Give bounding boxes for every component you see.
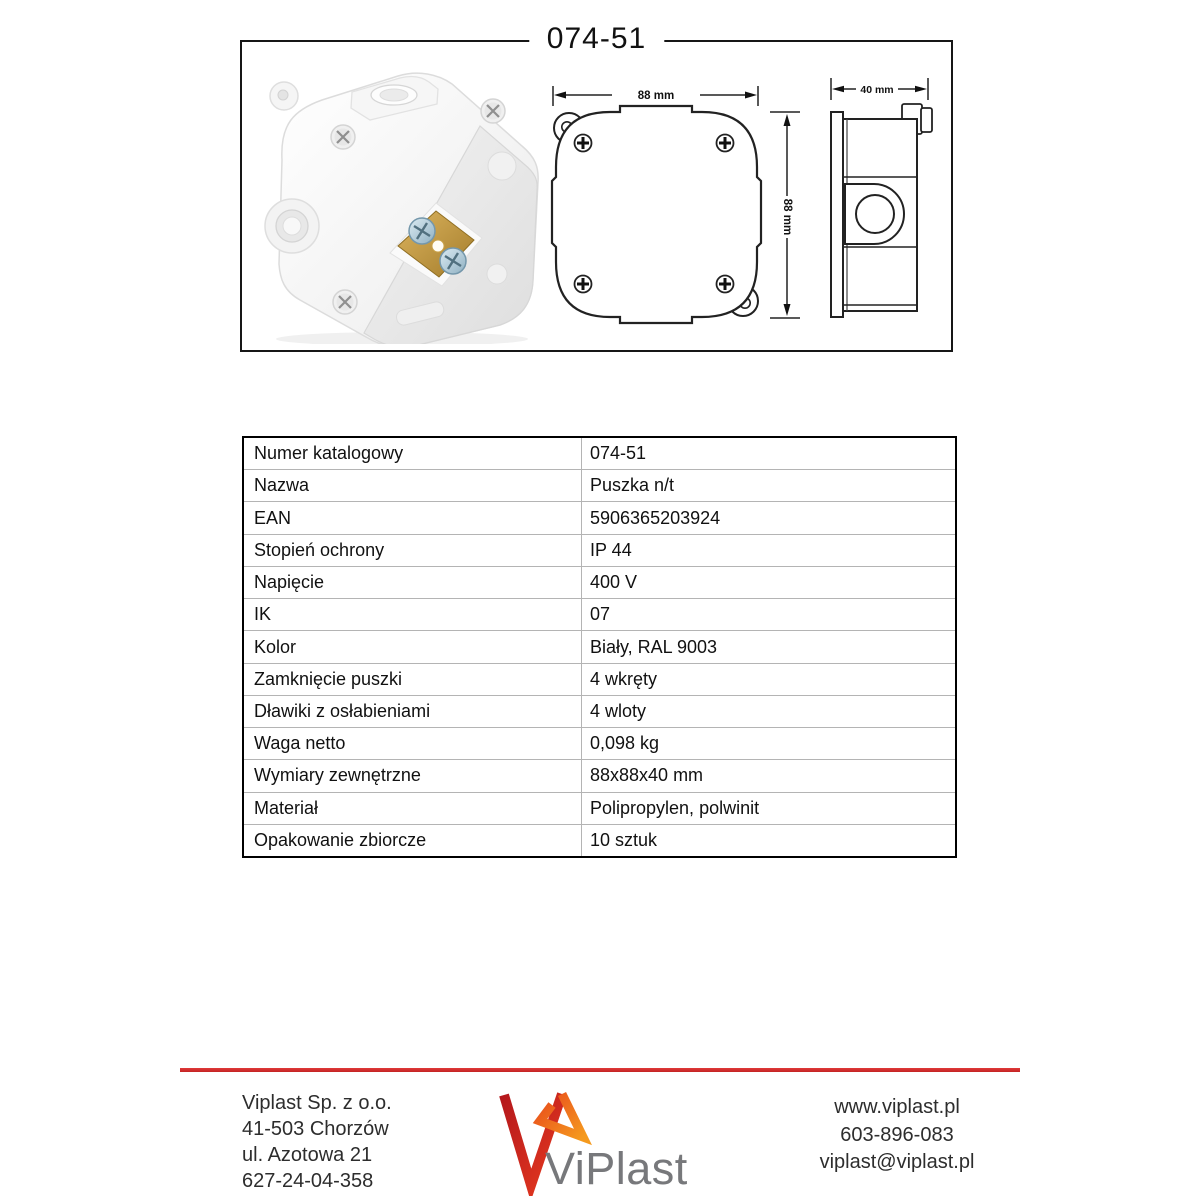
lid-screw	[481, 99, 505, 123]
spec-label: Numer katalogowy	[244, 438, 582, 469]
product-photo	[250, 68, 542, 344]
company-phone: 627-24-04-358	[242, 1168, 392, 1194]
table-row: Materiał Polipropylen, polwinit	[244, 792, 955, 824]
contact-website: www.viplast.pl	[772, 1094, 1022, 1122]
spec-label: IK	[244, 599, 582, 630]
side-cable-entry	[265, 199, 319, 253]
company-city: 41-503 Chorzów	[242, 1116, 392, 1142]
table-row: Napięcie 400 V	[244, 566, 955, 598]
front-view-drawing: 88 mm 88 mm	[540, 84, 812, 340]
terminal-screw	[440, 248, 466, 274]
spec-label: Zamknięcie puszki	[244, 664, 582, 695]
screw-symbol	[575, 135, 592, 152]
table-row: Nazwa Puszka n/t	[244, 469, 955, 501]
lid-screw	[331, 125, 355, 149]
logo-text: ViPlast	[545, 1143, 688, 1194]
depth-dimension-label: 40 mm	[860, 84, 893, 96]
footer-accent-line	[180, 1068, 1020, 1072]
table-row: EAN 5906365203924	[244, 501, 955, 533]
screw-symbol	[575, 276, 592, 293]
spec-value: 074-51	[582, 438, 955, 469]
spec-value: 4 wkręty	[582, 664, 955, 695]
side-view-drawing: 40 mm	[818, 75, 940, 335]
height-dimension-label: 88 mm	[781, 199, 793, 235]
spec-table: Numer katalogowy 074-51 Nazwa Puszka n/t…	[242, 436, 957, 858]
width-dimension-label: 88 mm	[638, 90, 674, 102]
contact-email: viplast@viplast.pl	[772, 1149, 1022, 1177]
spec-value: Biały, RAL 9003	[582, 631, 955, 662]
spec-value: 4 wloty	[582, 696, 955, 727]
spec-label: Waga netto	[244, 728, 582, 759]
spec-value: IP 44	[582, 535, 955, 566]
product-image-panel: 074-51	[240, 40, 953, 352]
company-name: Viplast Sp. z o.o.	[242, 1090, 392, 1116]
height-dimension: 88 mm	[770, 112, 800, 318]
spec-value: 400 V	[582, 567, 955, 598]
spec-label: Wymiary zewnętrzne	[244, 760, 582, 791]
interior-boss	[487, 264, 507, 284]
spec-value: 5906365203924	[582, 502, 955, 533]
spec-label: EAN	[244, 502, 582, 533]
spec-label: Materiał	[244, 793, 582, 824]
lid-screw	[333, 290, 357, 314]
spec-value: Puszka n/t	[582, 470, 955, 501]
screw-symbol	[717, 276, 734, 293]
table-row: Opakowanie zbiorcze 10 sztuk	[244, 824, 955, 856]
spec-label: Nazwa	[244, 470, 582, 501]
spec-label: Dławiki z osłabieniami	[244, 696, 582, 727]
spec-value: 07	[582, 599, 955, 630]
contact-phone: 603-896-083	[772, 1122, 1022, 1150]
mounting-ear	[270, 82, 298, 110]
table-row: Dławiki z osłabieniami 4 wloty	[244, 695, 955, 727]
spec-value: Polipropylen, polwinit	[582, 793, 955, 824]
spec-value: 10 sztuk	[582, 825, 955, 856]
table-row: Zamknięcie puszki 4 wkręty	[244, 663, 955, 695]
company-address-block: Viplast Sp. z o.o. 41-503 Chorzów ul. Az…	[242, 1090, 392, 1194]
table-row: Stopień ochrony IP 44	[244, 534, 955, 566]
table-row: IK 07	[244, 598, 955, 630]
spec-label: Napięcie	[244, 567, 582, 598]
side-cable-gland	[845, 184, 904, 244]
spec-label: Opakowanie zbiorcze	[244, 825, 582, 856]
table-row: Kolor Biały, RAL 9003	[244, 630, 955, 662]
contact-block: www.viplast.pl 603-896-083 viplast@vipla…	[772, 1094, 1022, 1177]
table-row: Wymiary zewnętrzne 88x88x40 mm	[244, 759, 955, 791]
screw-symbol	[717, 135, 734, 152]
table-row: Waga netto 0,098 kg	[244, 727, 955, 759]
table-row: Numer katalogowy 074-51	[244, 438, 955, 469]
side-lid	[831, 112, 843, 317]
company-street: ul. Azotowa 21	[242, 1142, 392, 1168]
page-title: 074-51	[529, 21, 664, 57]
spec-label: Kolor	[244, 631, 582, 662]
spec-label: Stopień ochrony	[244, 535, 582, 566]
spec-value: 88x88x40 mm	[582, 760, 955, 791]
depth-dimension: 40 mm	[831, 78, 928, 100]
spec-value: 0,098 kg	[582, 728, 955, 759]
width-dimension: 88 mm	[553, 86, 758, 106]
terminal-screw	[409, 218, 435, 244]
interior-boss	[488, 152, 516, 180]
company-logo: ViPlast	[488, 1086, 703, 1196]
